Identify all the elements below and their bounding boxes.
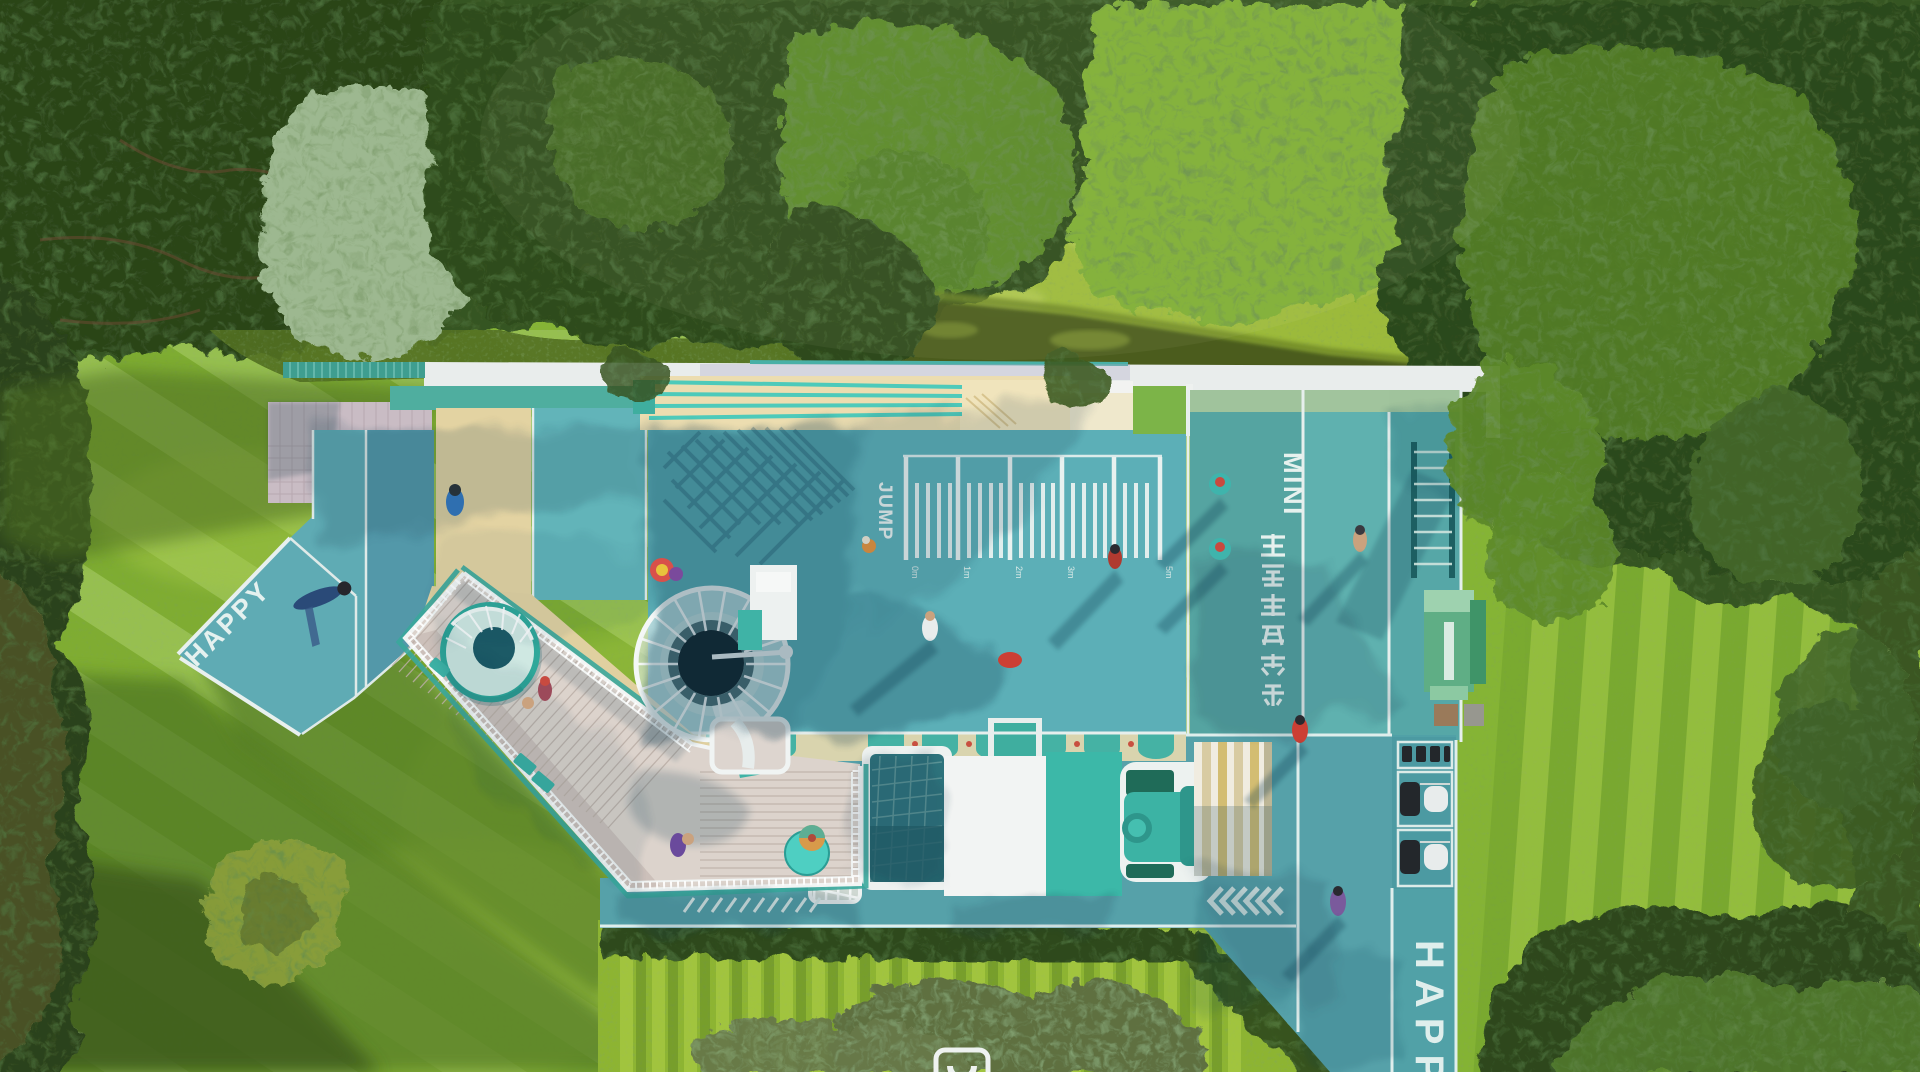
svg-text:HAPPY: HAPPY xyxy=(1407,940,1451,1072)
svg-text:3m: 3m xyxy=(1066,566,1076,579)
svg-text:2m: 2m xyxy=(1014,566,1024,579)
svg-text:MINI: MINI xyxy=(1278,452,1308,517)
